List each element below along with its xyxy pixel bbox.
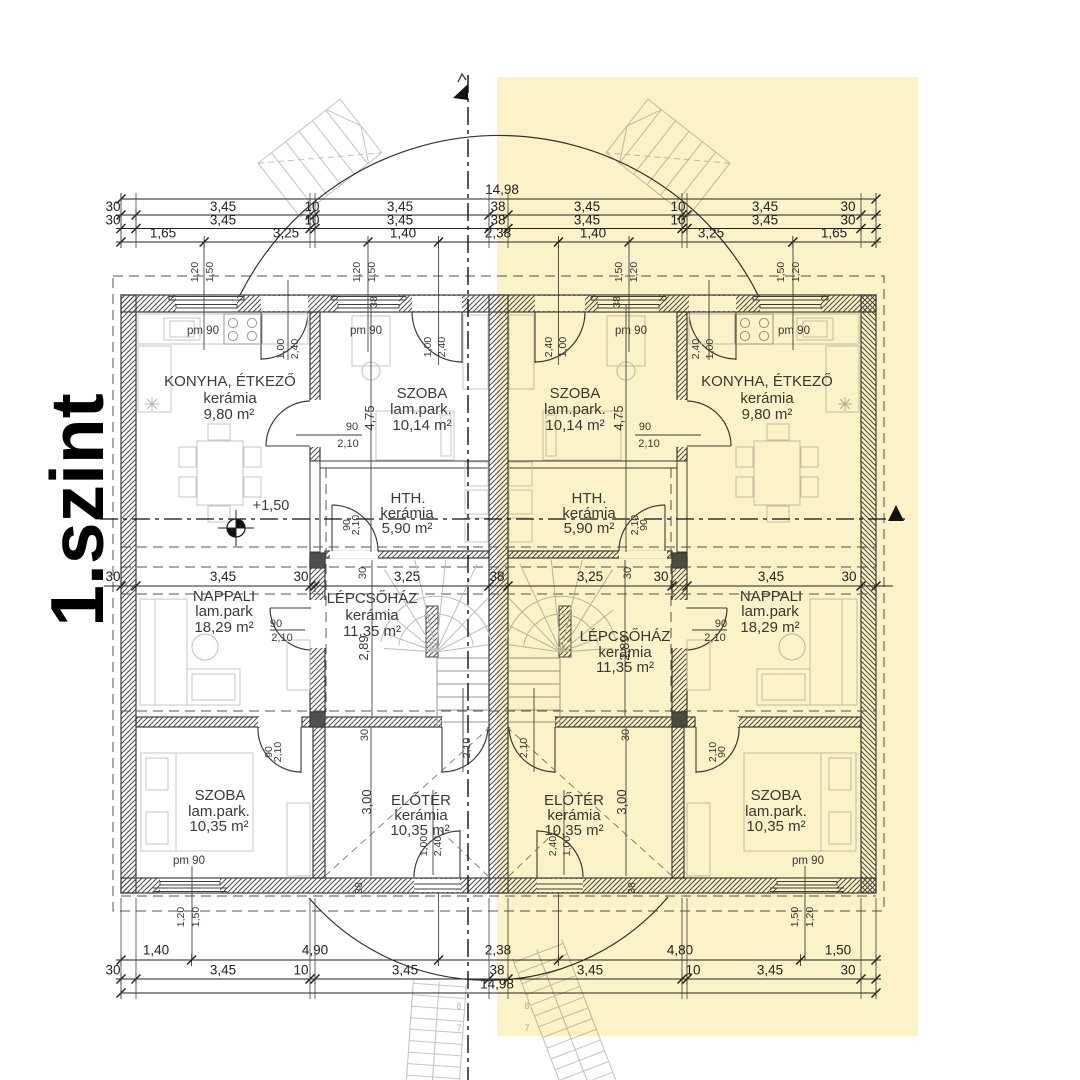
svg-text:7: 7	[456, 1023, 461, 1033]
svg-text:1,00: 1,00	[275, 339, 287, 360]
svg-text:kerámia: kerámia	[203, 390, 257, 407]
svg-text:3,25: 3,25	[394, 569, 420, 584]
svg-text:3,00: 3,00	[359, 789, 374, 814]
svg-text:kerámia: kerámia	[345, 607, 399, 624]
svg-text:10,14 m²: 10,14 m²	[392, 417, 451, 434]
svg-text:8: 8	[456, 1001, 461, 1011]
svg-text:30: 30	[293, 569, 308, 584]
svg-text:1,50: 1,50	[366, 262, 378, 283]
svg-text:4,75: 4,75	[362, 405, 377, 430]
svg-text:3,45: 3,45	[392, 963, 418, 978]
svg-text:10,35 m²: 10,35 m²	[189, 818, 248, 835]
svg-text:3,45: 3,45	[210, 963, 236, 978]
svg-text:3,45: 3,45	[210, 213, 236, 228]
svg-text:30: 30	[105, 963, 120, 978]
svg-text:1,20: 1,20	[175, 907, 187, 928]
svg-text:2,10: 2,10	[350, 515, 362, 536]
svg-text:10: 10	[293, 963, 308, 978]
svg-text:2,10: 2,10	[461, 738, 473, 759]
svg-text:KONYHA, ÉTKEZŐ: KONYHA, ÉTKEZŐ	[164, 373, 296, 390]
svg-text:10: 10	[304, 213, 319, 228]
svg-text:2,40: 2,40	[436, 337, 448, 358]
svg-text:3,25: 3,25	[273, 226, 299, 241]
svg-text:30: 30	[105, 213, 120, 228]
svg-text:2,40: 2,40	[289, 339, 301, 360]
svg-text:30: 30	[357, 567, 369, 579]
svg-text:9,80 m²: 9,80 m²	[204, 406, 255, 423]
svg-text:1.szint: 1.szint	[35, 393, 119, 626]
svg-text:1,20: 1,20	[189, 262, 201, 283]
svg-text:38: 38	[368, 296, 380, 308]
svg-text:LÉPCSŐHÁZ: LÉPCSŐHÁZ	[327, 590, 418, 607]
svg-text:1,65: 1,65	[150, 226, 176, 241]
svg-text:lam.park.: lam.park.	[390, 401, 452, 418]
svg-text:pm 90: pm 90	[350, 325, 382, 337]
svg-text:1,00: 1,00	[422, 337, 434, 358]
svg-text:30: 30	[359, 729, 371, 741]
svg-text:1,40: 1,40	[143, 943, 169, 958]
svg-text:1,50: 1,50	[204, 262, 216, 283]
svg-text:lam.park: lam.park	[195, 603, 253, 620]
svg-text:2,10: 2,10	[272, 742, 284, 763]
svg-text:1,20: 1,20	[351, 262, 363, 283]
svg-text:2,10: 2,10	[271, 632, 292, 644]
svg-text:90: 90	[346, 421, 358, 433]
svg-text:5,90 m²: 5,90 m²	[382, 520, 433, 537]
svg-text:18,29 m²: 18,29 m²	[194, 619, 253, 636]
svg-text:+1,50: +1,50	[253, 498, 290, 514]
svg-text:SZOBA: SZOBA	[397, 385, 448, 402]
svg-text:1,40: 1,40	[390, 226, 416, 241]
svg-text:10,35 m²: 10,35 m²	[390, 822, 449, 839]
svg-text:2,10: 2,10	[337, 438, 358, 450]
svg-text:90: 90	[270, 618, 282, 630]
svg-text:11,35 m²: 11,35 m²	[343, 623, 401, 640]
svg-text:SZOBA: SZOBA	[195, 787, 246, 804]
svg-text:1,50: 1,50	[190, 907, 202, 928]
svg-text:pm 90: pm 90	[173, 855, 205, 867]
svg-text:3,45: 3,45	[210, 569, 236, 584]
svg-text:38: 38	[353, 882, 365, 894]
svg-text:pm 90: pm 90	[187, 325, 219, 337]
